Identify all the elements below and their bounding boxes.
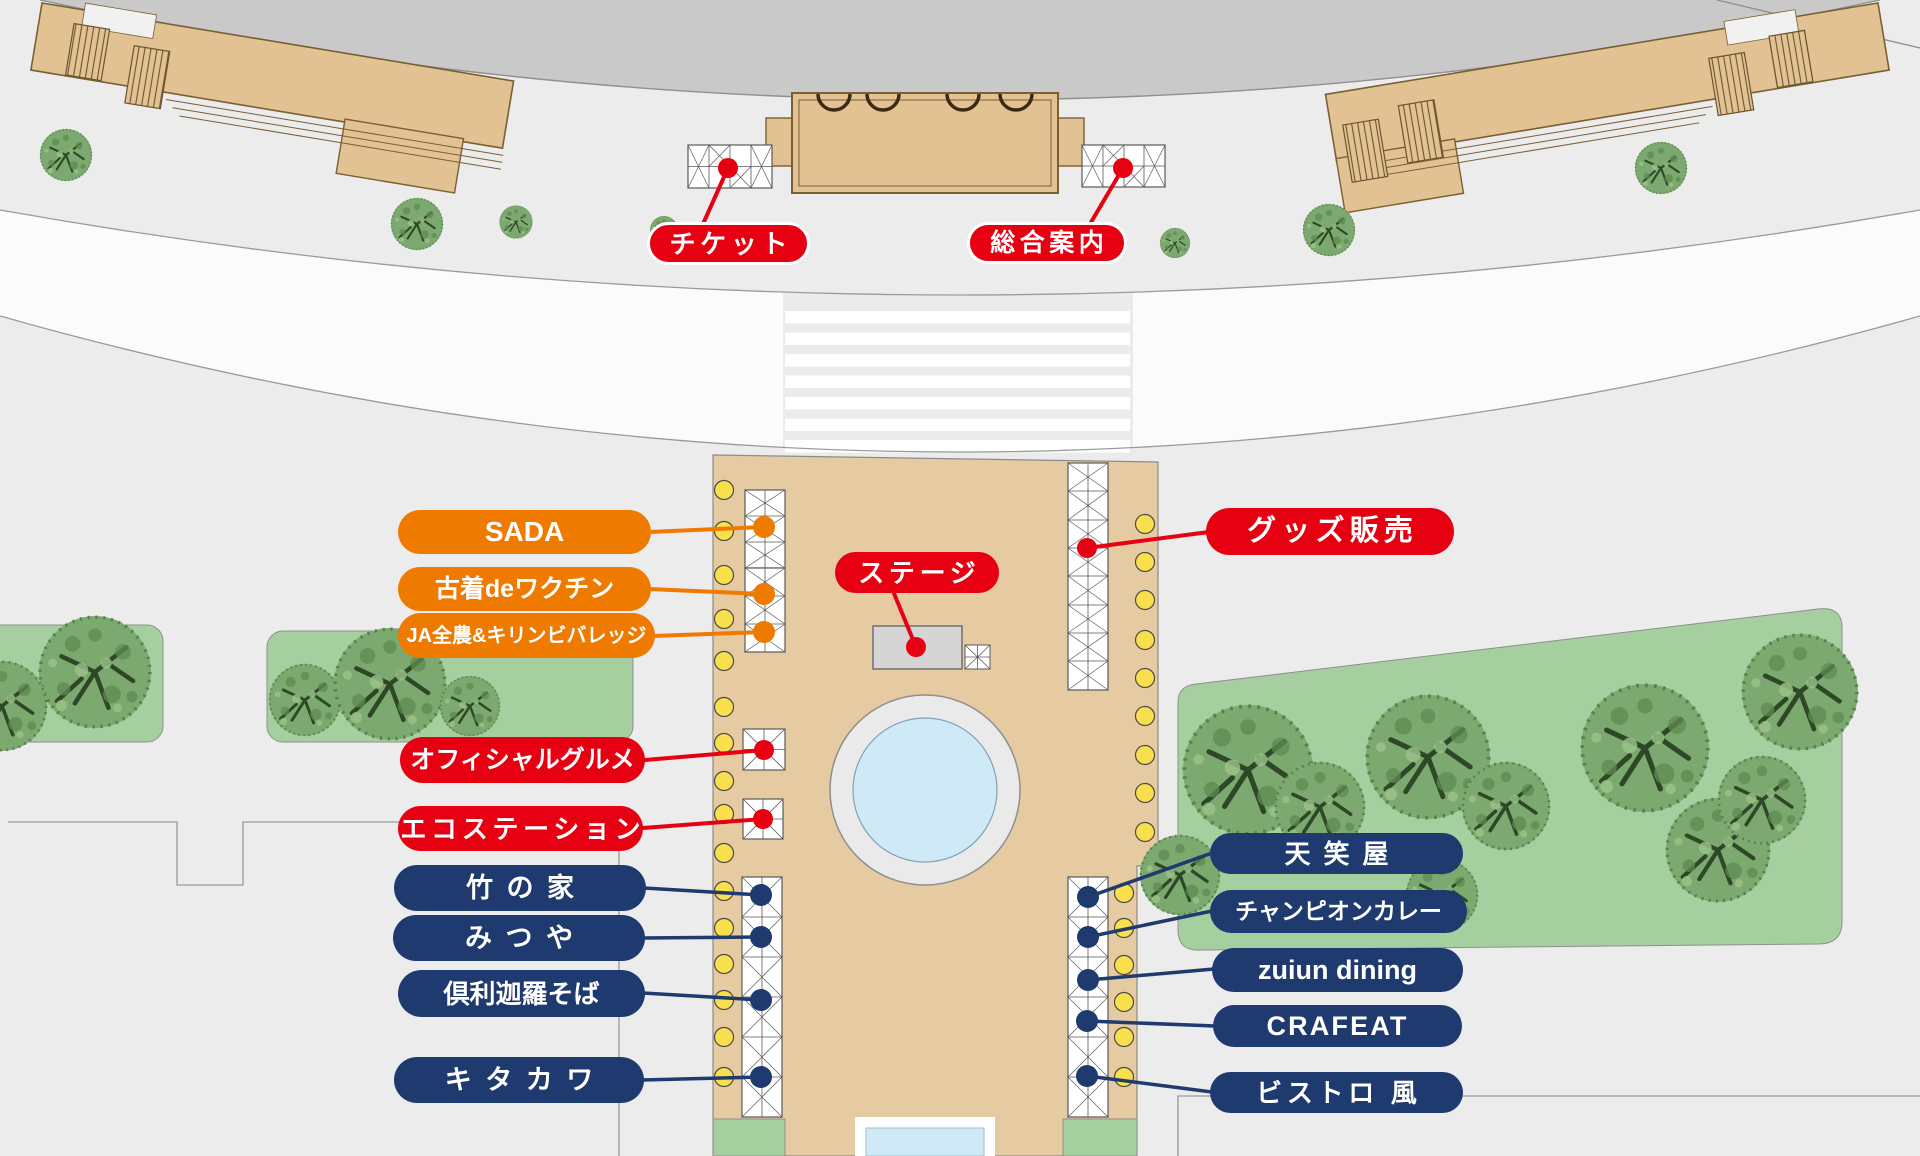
label-mitsuya: みつや xyxy=(393,915,645,961)
stairs-icon xyxy=(66,24,110,81)
stairs-icon xyxy=(1769,30,1813,87)
label-ja-zennoh-kirin: JA全農&キリンビバレッジ xyxy=(398,613,655,658)
tent xyxy=(965,645,990,669)
entrance-building xyxy=(766,93,1084,193)
label-tenshoya: 天笑屋 xyxy=(1210,833,1463,874)
fountain xyxy=(830,695,1020,885)
label-kurikara-soba: 倶利迦羅そば xyxy=(398,970,645,1017)
venue-map-page: チケット 総合案内 SADA 古着deワクチン JA全農&キリンビバレッジ ステ… xyxy=(0,0,1920,1156)
label-eco-station: エコステーション xyxy=(398,806,643,851)
green-plaza-bl xyxy=(713,1119,785,1156)
label-stage: ステージ xyxy=(835,552,999,593)
label-furugi-de-vaccine: 古着deワクチン xyxy=(398,567,651,611)
green-plaza-br xyxy=(1063,1119,1137,1156)
label-sada: SADA xyxy=(398,510,651,554)
label-ticket: チケット xyxy=(647,222,810,265)
label-bistro-kaze: ビストロ 風 xyxy=(1210,1072,1463,1113)
goods-tents xyxy=(1068,463,1108,690)
label-takenoya: 竹の家 xyxy=(394,865,646,911)
label-goods: グッズ販売 xyxy=(1206,508,1454,555)
crosswalk xyxy=(783,293,1133,460)
pool xyxy=(855,1117,995,1156)
label-kitakawa: キタカワ xyxy=(394,1057,644,1103)
label-info: 総合案内 xyxy=(967,222,1127,264)
label-zuiun-dining: zuiun dining xyxy=(1212,948,1463,992)
label-official-gourmet: オフィシャルグルメ xyxy=(400,737,645,783)
label-champion-curry: チャンピオンカレー xyxy=(1210,890,1467,933)
label-crafeat: CRAFEAT xyxy=(1213,1005,1462,1047)
